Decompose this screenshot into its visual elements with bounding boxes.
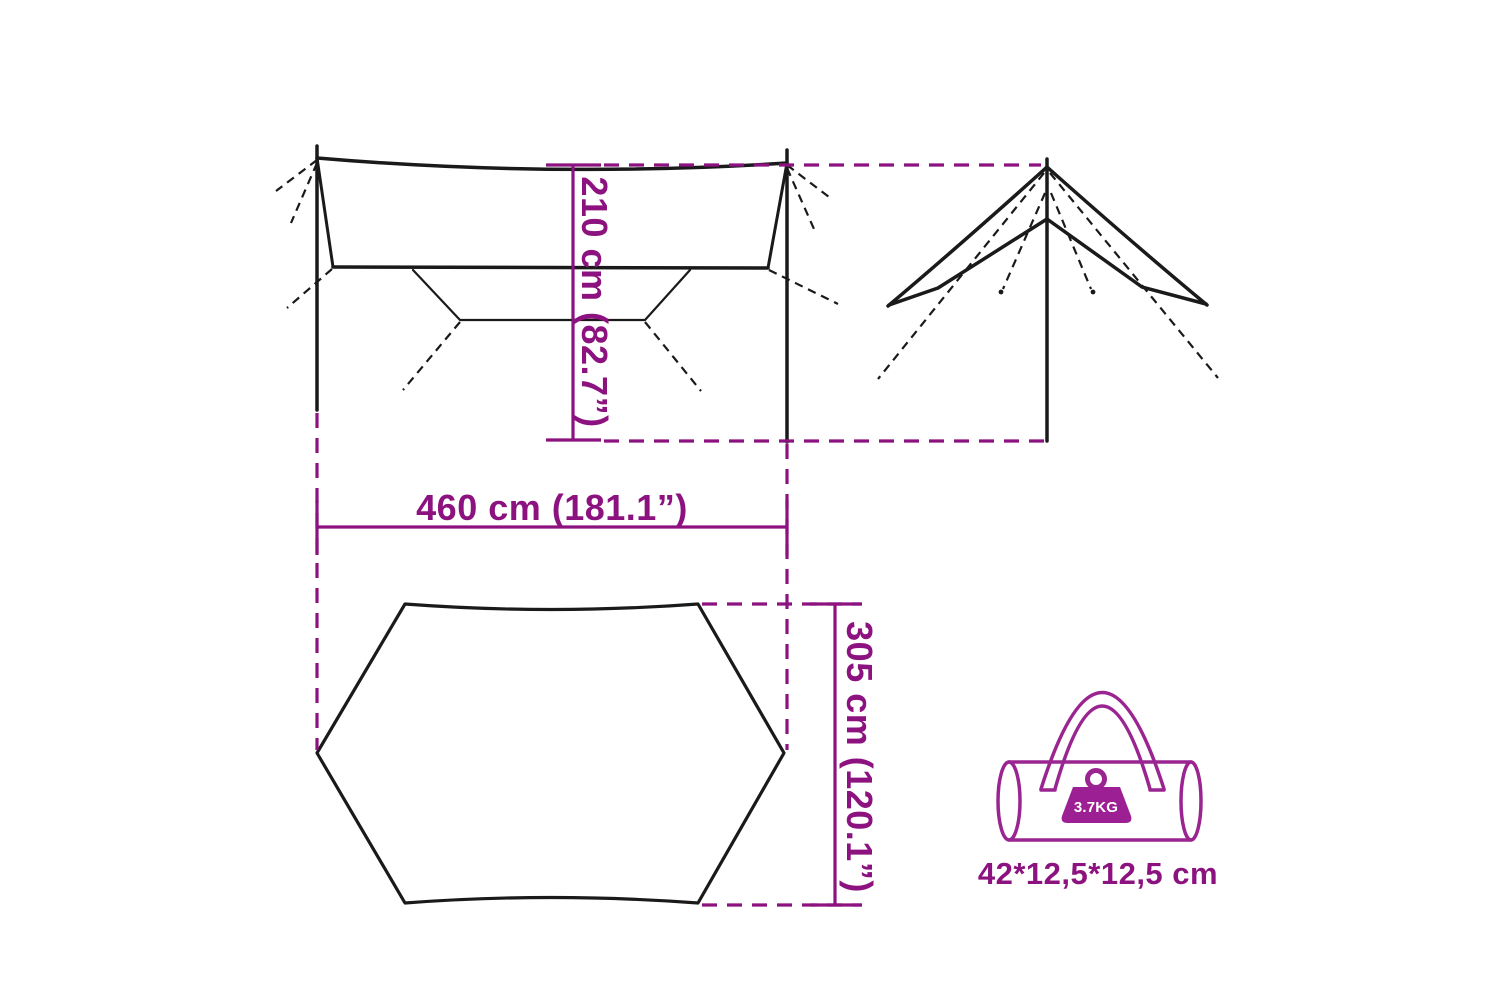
guy-line <box>276 160 317 191</box>
front-tarp-right-slope <box>768 163 787 268</box>
extension-lines <box>317 165 1045 905</box>
guy-line <box>645 322 701 391</box>
depth-dimension-label: 305 cm (120.1”) <box>839 621 880 893</box>
diagram-canvas: 460 cm (181.1”) 210 cm (82.7”) 305 cm (1… <box>0 0 1500 1000</box>
guy-line <box>287 269 332 308</box>
top-view-hexagon <box>317 604 784 903</box>
guy-line <box>1051 193 1091 289</box>
height-dimension-label: 210 cm (82.7”) <box>574 176 615 427</box>
front-tarp-back-edge <box>413 270 690 320</box>
front-tarp-mid-edge <box>333 267 768 268</box>
bag-end-left <box>998 762 1020 840</box>
guy-line <box>291 163 317 223</box>
guy-line <box>769 270 838 304</box>
guy-line <box>1050 173 1218 378</box>
guy-line <box>403 322 460 390</box>
side-right-eave <box>1047 219 1206 304</box>
guy-stake-dot <box>999 290 1004 295</box>
front-tarp-left-slope <box>317 158 333 267</box>
tarp-dimension-diagram: 460 cm (181.1”) 210 cm (82.7”) 305 cm (1… <box>0 0 1500 1000</box>
guy-line <box>787 165 829 197</box>
guy-stake-dot <box>1091 290 1096 295</box>
side-view <box>878 159 1218 441</box>
bag-end-right <box>1181 762 1201 840</box>
width-dimension-label: 460 cm (181.1”) <box>416 487 688 528</box>
front-view <box>276 146 838 442</box>
side-left-eave <box>889 219 1047 305</box>
front-guy-lines <box>276 160 838 391</box>
guy-line <box>878 173 1044 379</box>
weight-value-label: 3.7KG <box>1074 799 1118 816</box>
guy-line <box>787 168 814 229</box>
top-view <box>317 604 784 903</box>
weight-icon: 3.7KG <box>1062 787 1132 823</box>
packed-size-label: 42*12,5*12,5 cm <box>978 856 1218 891</box>
weight-icon-loop <box>1088 771 1105 788</box>
